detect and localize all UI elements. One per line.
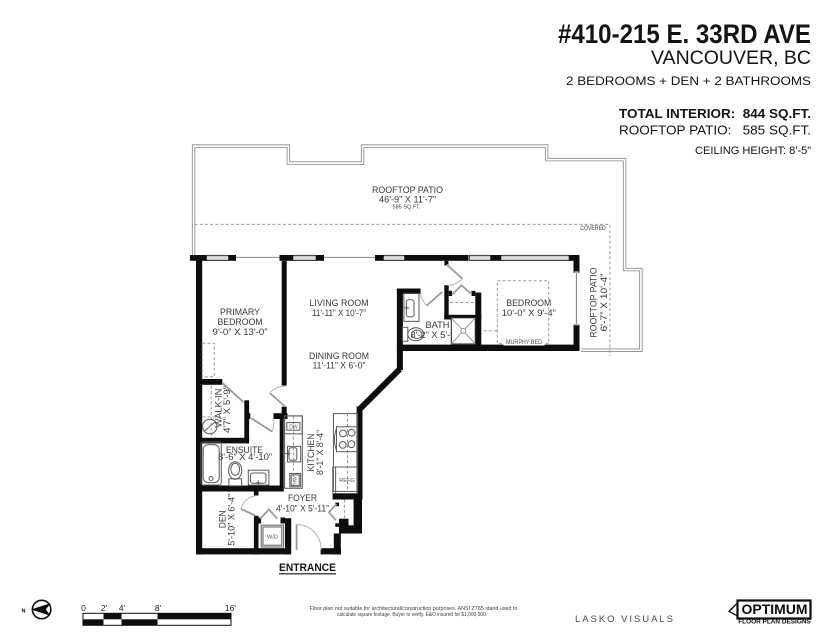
svg-text:MURPHY BED: MURPHY BED: [506, 340, 543, 346]
svg-text:9'-0” X 13'-0”: 9'-0” X 13'-0”: [213, 327, 268, 337]
svg-text:DW: DW: [289, 425, 298, 431]
svg-text:LASKO VISUALS: LASKO VISUALS: [575, 614, 676, 625]
svg-text:8'-1” X 8'-4”: 8'-1” X 8'-4”: [315, 430, 325, 475]
svg-text:OPTIMUM: OPTIMUM: [742, 601, 808, 617]
svg-text:FOYER: FOYER: [288, 492, 317, 503]
svg-text:BEDROOM: BEDROOM: [218, 316, 263, 327]
svg-text:N: N: [22, 609, 26, 615]
svg-text:ROOFTOP PATIO: ROOFTOP PATIO: [588, 268, 599, 338]
svg-text:LIVING ROOM: LIVING ROOM: [310, 297, 369, 308]
svg-text:10'-0” X 9'-4”: 10'-0” X 9'-4”: [502, 308, 556, 318]
svg-text:2': 2': [101, 603, 108, 613]
svg-text:REFG: REFG: [339, 478, 355, 484]
svg-text:4'-10” X 5'-11”: 4'-10” X 5'-11”: [276, 504, 329, 514]
svg-text:2 BEDROOMS + DEN + 2 BATHROOMS: 2 BEDROOMS + DEN + 2 BATHROOMS: [566, 76, 811, 88]
svg-text:6'-7” X 10'-4”: 6'-7” X 10'-4”: [599, 274, 609, 332]
svg-text:ROOFTOP PATIO: 585 SQ.FT.: ROOFTOP PATIO: 585 SQ.FT.: [619, 123, 811, 138]
svg-text:46'-9” X 11'-7”: 46'-9” X 11'-7”: [379, 193, 436, 204]
svg-text:0: 0: [81, 603, 86, 613]
svg-text:8': 8': [155, 603, 162, 613]
svg-text:4': 4': [119, 603, 126, 613]
svg-text:8'-6” X 4'-10”: 8'-6” X 4'-10”: [218, 452, 272, 462]
svg-text:#410-215 E. 33RD AVE: #410-215 E. 33RD AVE: [558, 19, 811, 49]
svg-text:W/D: W/D: [267, 535, 278, 541]
svg-text:TOTAL INTERIOR: 844 SQ.FT.: TOTAL INTERIOR: 844 SQ.FT.: [619, 106, 811, 121]
svg-text:11'-11” X 10'-7”: 11'-11” X 10'-7”: [312, 308, 366, 318]
svg-text:585 SQ.FT.: 585 SQ.FT.: [393, 205, 421, 211]
svg-text:calculate square footage. Buye: calculate square footage. Buyer to verif…: [337, 612, 487, 618]
svg-text:BATH: BATH: [426, 319, 450, 330]
svg-text:HW: HW: [293, 476, 298, 484]
svg-text:DINING ROOM: DINING ROOM: [309, 350, 369, 361]
svg-text:ENTRANCE: ENTRANCE: [279, 562, 336, 574]
svg-text:11'-11” X 6'-0”: 11'-11” X 6'-0”: [313, 361, 366, 371]
svg-text:COVERED: COVERED: [580, 225, 606, 232]
svg-text:CEILING HEIGHT: 8'-5”: CEILING HEIGHT: 8'-5”: [695, 145, 811, 157]
svg-text:5'-10” X 6'-4”: 5'-10” X 6'-4”: [226, 494, 236, 546]
svg-text:BEDROOM: BEDROOM: [506, 297, 551, 308]
svg-text:VANCOUVER, BC: VANCOUVER, BC: [651, 47, 811, 69]
svg-text:Floor plan not suitable for ar: Floor plan not suitable for architectura…: [310, 606, 519, 612]
svg-text:4'7” X 5'-9”: 4'7” X 5'-9”: [222, 386, 232, 433]
svg-text:FLOOR PLAN DESIGNS: FLOOR PLAN DESIGNS: [738, 619, 811, 626]
svg-text:16': 16': [225, 603, 236, 613]
